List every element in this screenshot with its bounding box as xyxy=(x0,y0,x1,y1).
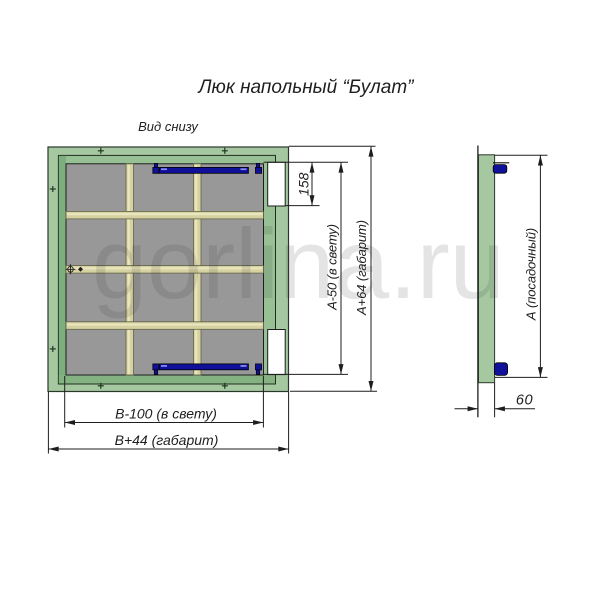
svg-text:А (посадочный): А (посадочный) xyxy=(524,228,539,321)
svg-text:В-100 (в свету): В-100 (в свету) xyxy=(115,406,217,422)
svg-text:gorlina.ru: gorlina.ru xyxy=(92,208,505,319)
svg-text:Вид снизу: Вид снизу xyxy=(138,119,199,134)
svg-text:В+44 (габарит): В+44 (габарит) xyxy=(115,432,219,448)
svg-text:60: 60 xyxy=(516,393,533,409)
svg-text:158: 158 xyxy=(296,172,312,196)
svg-text:Люк напольный “Булат”: Люк напольный “Булат” xyxy=(197,77,416,98)
